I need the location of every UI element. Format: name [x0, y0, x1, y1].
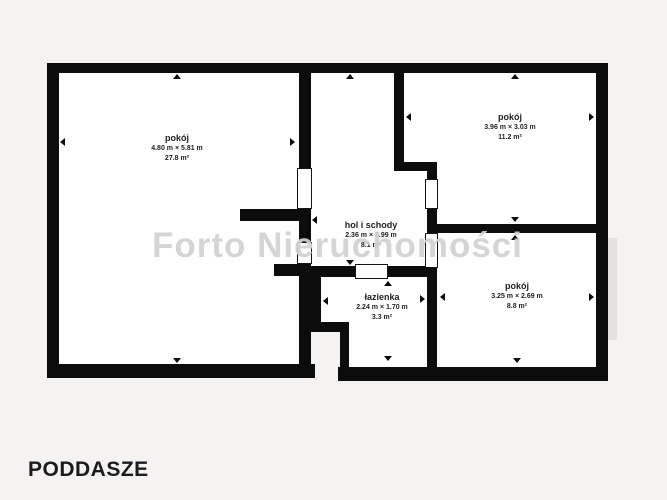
measure-arrow-icon: [511, 74, 519, 79]
room-label-bathroom: łazienka 2.24 m × 1.70 m 3.3 m²: [356, 292, 408, 323]
wall-hall-topright-upper: [394, 73, 404, 171]
room-dimensions: 3.96 m × 3.03 m: [484, 123, 536, 133]
measure-arrow-icon: [173, 358, 181, 363]
room-name: pokój: [151, 133, 203, 144]
exterior-notch: [311, 332, 340, 380]
measure-arrow-icon: [346, 74, 354, 79]
room-area: 8.8 m²: [491, 302, 543, 312]
door-left-room-upper: [297, 168, 312, 209]
measure-arrow-icon: [406, 113, 411, 121]
door-top-right-room: [425, 179, 438, 209]
floor-level-caption: PODDASZE: [28, 458, 149, 482]
room-dimensions: 3.25 m × 2.69 m: [491, 292, 543, 302]
wall-notch-right: [340, 322, 349, 380]
measure-arrow-icon: [312, 216, 317, 224]
room-name: łazienka: [356, 292, 408, 303]
measure-arrow-icon: [384, 356, 392, 361]
measure-arrow-icon: [420, 295, 425, 303]
measure-arrow-icon: [384, 281, 392, 286]
room-dimensions: 2.24 m × 1.70 m: [356, 303, 408, 313]
measure-arrow-icon: [511, 217, 519, 222]
room-area: 11.2 m²: [484, 133, 536, 143]
wall-outer-bottom-right: [338, 367, 608, 381]
wall-outer-top: [47, 63, 608, 73]
room-label-top-right: pokój 3.96 m × 3.03 m 11.2 m²: [484, 112, 536, 143]
measure-arrow-icon: [589, 293, 594, 301]
door-bathroom: [355, 264, 388, 279]
measure-arrow-icon: [60, 138, 65, 146]
measure-arrow-icon: [589, 113, 594, 121]
measure-arrow-icon: [173, 74, 181, 79]
measure-arrow-icon: [323, 297, 328, 305]
room-area: 27.8 m²: [151, 154, 203, 164]
room-label-bottom-right: pokój 3.25 m × 2.69 m 8.8 m²: [491, 281, 543, 312]
room-label-left: pokój 4.80 m × 5.81 m 27.8 m²: [151, 133, 203, 164]
room-dimensions: 4.80 m × 5.81 m: [151, 144, 203, 154]
measure-arrow-icon: [290, 138, 295, 146]
room-area: 3.3 m²: [356, 313, 408, 323]
room-name: pokój: [484, 112, 536, 123]
measure-arrow-icon: [513, 358, 521, 363]
measure-arrow-icon: [440, 293, 445, 301]
wall-stair-stub-upper: [240, 209, 311, 221]
watermark-text: Forto Nieruchomości: [0, 226, 667, 266]
wall-outer-right: [596, 63, 608, 381]
wall-outer-left: [47, 63, 59, 378]
wall-outer-bottom-left: [47, 364, 315, 378]
room-name: pokój: [491, 281, 543, 292]
floorplan-canvas: pokój 4.80 m × 5.81 m 27.8 m² pokój 3.96…: [0, 0, 667, 500]
